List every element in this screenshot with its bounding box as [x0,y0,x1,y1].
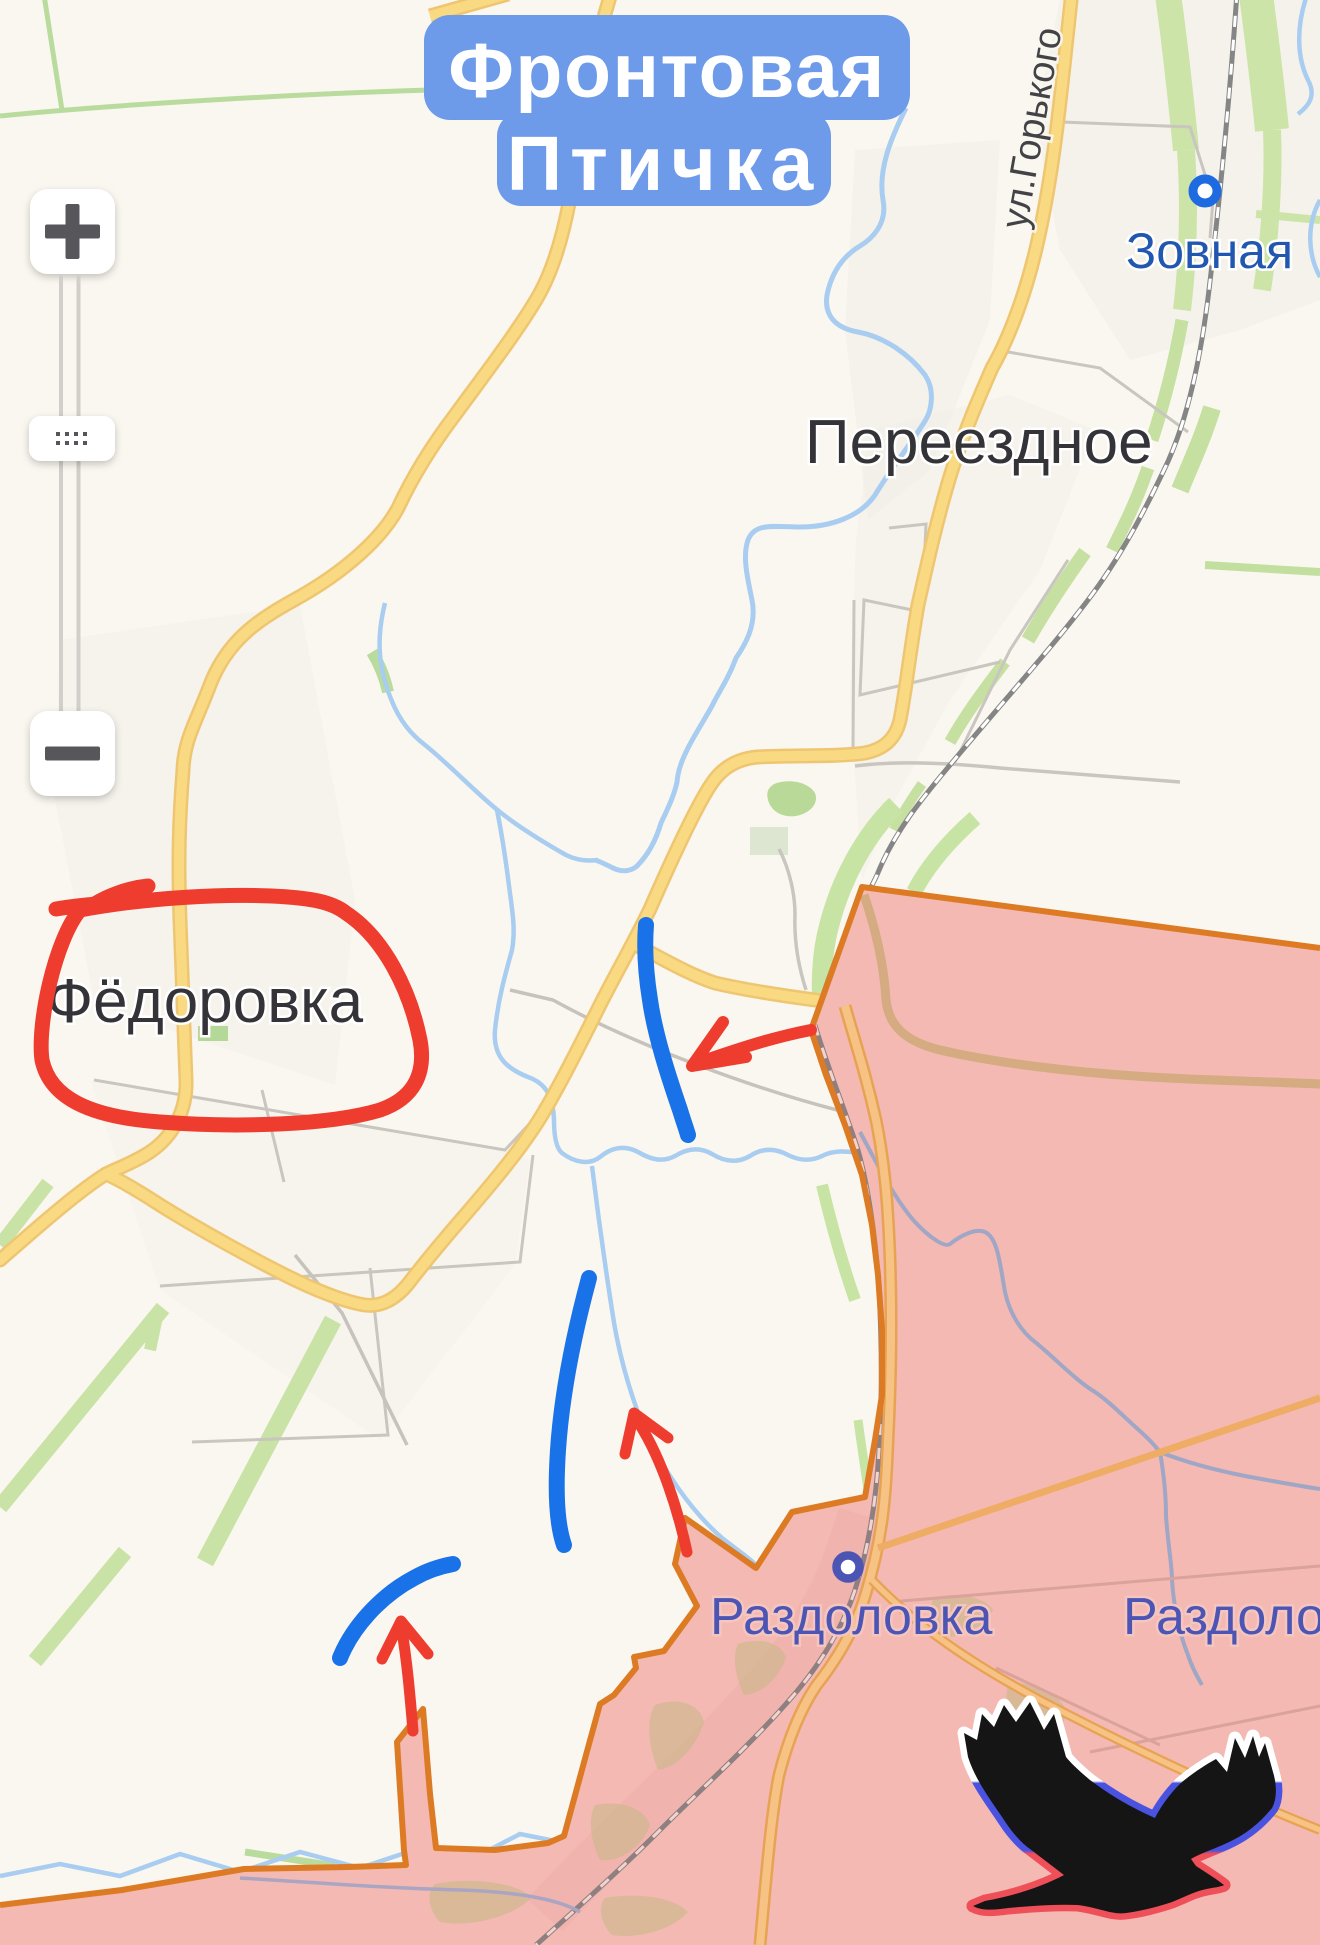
svg-text:Раздоловка: Раздоловка [710,1588,992,1646]
svg-text:Птичка: Птичка [507,121,821,207]
svg-text:Переездное: Переездное [805,408,1153,477]
svg-text:Фронтовая: Фронтовая [448,28,886,114]
svg-text:Фёдоровка: Фёдоровка [46,967,364,1036]
svg-text:Зовная: Зовная [1126,223,1293,279]
svg-text:Раздоловка: Раздоловка [1123,1588,1320,1646]
